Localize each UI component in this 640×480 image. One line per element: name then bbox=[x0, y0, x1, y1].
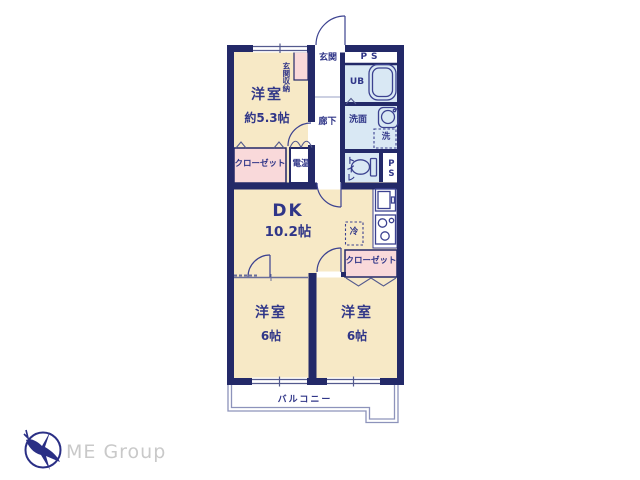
balcony-label: バルコニー bbox=[250, 396, 360, 405]
floorplan-drawing bbox=[0, 0, 640, 480]
logo-company-name: ME Group bbox=[66, 441, 166, 463]
unit-bath-label: UB bbox=[346, 78, 368, 87]
western53-label: 洋室 bbox=[229, 88, 305, 103]
western-br-size: 6帖 bbox=[317, 330, 397, 343]
washer-label: 洗 bbox=[380, 133, 392, 142]
ps-top-label: PS bbox=[345, 53, 397, 62]
western-bl-size: 6帖 bbox=[234, 330, 308, 343]
hallway-label: 廊下 bbox=[315, 118, 340, 127]
entrance-door-gap bbox=[315, 45, 345, 53]
western-br-label: 洋室 bbox=[317, 306, 397, 321]
dk-door-gap bbox=[317, 183, 341, 190]
entrance-storage-box bbox=[294, 52, 308, 80]
floorplan-page: 洋室 約5.3帖 玄関収納 玄関 PS UB 洗面 洗 廊下 クローゼット 電温… bbox=[0, 0, 640, 480]
washroom-label: 洗面 bbox=[345, 116, 371, 125]
entrance-door-icon bbox=[316, 16, 345, 45]
western-br-door-gap bbox=[317, 272, 341, 278]
entrance-label: 玄関 bbox=[314, 54, 342, 63]
logo-bird-icon bbox=[24, 430, 61, 470]
water-heater-label: 電温 bbox=[290, 160, 312, 169]
dk-label: DK bbox=[253, 203, 323, 221]
fridge-label: 冷 bbox=[345, 228, 363, 237]
western-bl-label: 洋室 bbox=[234, 306, 308, 321]
closet-west-label: クローゼット bbox=[234, 160, 286, 169]
ps-side-label: PS bbox=[387, 156, 396, 182]
toilet-label: トイレ bbox=[345, 155, 354, 182]
western53-door-gap bbox=[308, 122, 315, 145]
western53-size: 約5.3帖 bbox=[229, 112, 305, 125]
closet-east-label: クローゼット bbox=[345, 257, 397, 266]
dk-size: 10.2帖 bbox=[253, 225, 323, 239]
entrance-storage-label: 玄関収納 bbox=[282, 52, 290, 102]
